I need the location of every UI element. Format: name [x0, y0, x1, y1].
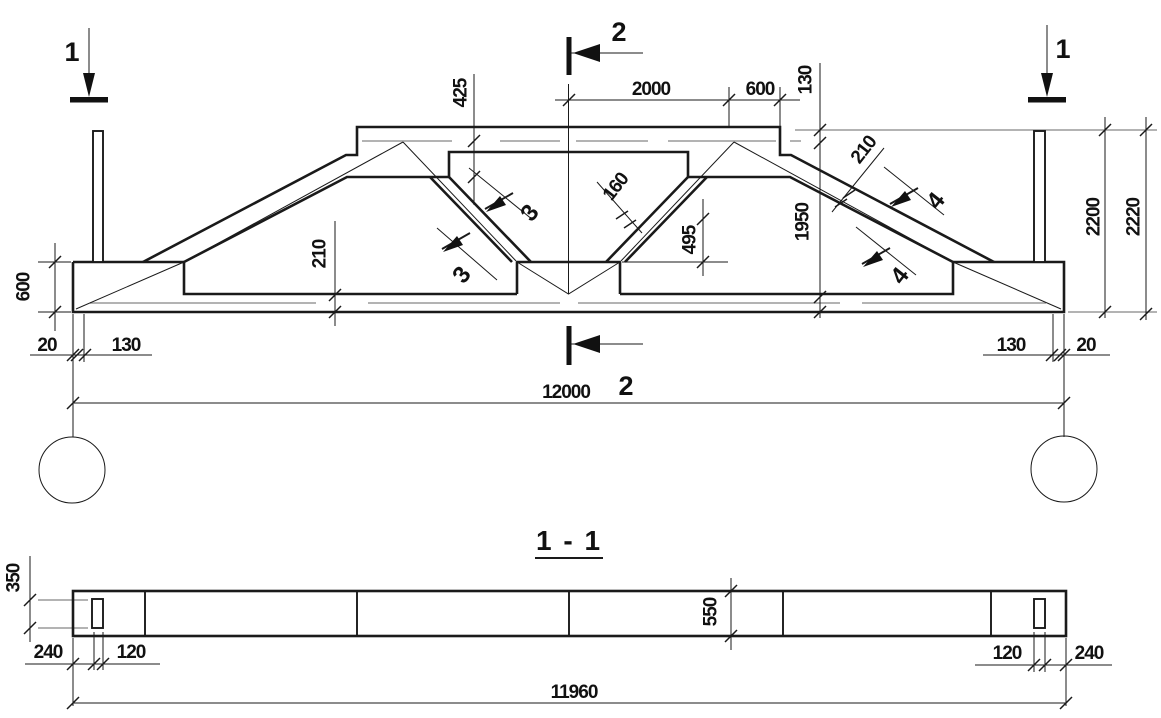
grid-bubble-right [1031, 436, 1097, 502]
drawing-page: 1 1 2 2 2000 600 12000 20 130 130 20 425… [0, 0, 1161, 718]
dim-425: 425 [451, 77, 472, 107]
labels: 1 1 2 2 2000 600 12000 20 130 130 20 425… [4, 17, 1145, 703]
section1-right-arrowhead [1041, 73, 1053, 97]
dim-120-right: 120 [993, 643, 1022, 664]
dim-20-right: 20 [1076, 335, 1096, 356]
section1-left-bar [70, 97, 108, 103]
section-view-title: 1 - 1 [536, 525, 602, 556]
section1-right-label: 1 [1055, 34, 1070, 64]
dim-550: 550 [701, 597, 722, 626]
dim-2200: 2200 [1084, 197, 1105, 236]
section2-bottom-bar [567, 326, 572, 365]
dim-1950: 1950 [793, 202, 814, 241]
flag-4a-label: 4 [921, 187, 951, 215]
section-bar-divisions [145, 591, 991, 636]
section-loop-right [1034, 599, 1045, 628]
flag-3a-label: 3 [515, 199, 545, 226]
flag-3b-label: 3 [447, 261, 477, 288]
dim-11960: 11960 [551, 682, 598, 703]
dim-600-top: 600 [746, 79, 775, 100]
dim-130-left: 130 [112, 335, 141, 356]
dim-600-left: 600 [14, 272, 35, 301]
dim-210-right: 210 [847, 132, 881, 168]
dim-12000: 12000 [542, 382, 590, 403]
truss-drawing-canvas: 1 1 2 2 2000 600 12000 20 130 130 20 425… [0, 0, 1161, 718]
flag-4b-label: 4 [885, 262, 915, 290]
dim-210-left: 210 [310, 239, 331, 268]
section1-right-bar [1028, 97, 1066, 103]
dim-160: 160 [599, 169, 633, 205]
section2-top-arrowhead [573, 44, 600, 62]
dim-130-right: 130 [997, 335, 1026, 356]
dim-2220: 2220 [1124, 197, 1145, 236]
dim-20-left: 20 [37, 335, 57, 356]
section1-left-arrowhead [83, 73, 95, 97]
flag-3a [485, 193, 513, 212]
section2-bottom-arrowhead [573, 335, 600, 353]
section1-left-label: 1 [64, 37, 79, 67]
section-1-1-view [73, 558, 1066, 636]
section2-bottom-label: 2 [618, 371, 633, 401]
embedded-post-right [1034, 131, 1045, 262]
embedded-post-left [93, 131, 103, 262]
flag-4b [862, 248, 890, 267]
dim-240-left: 240 [34, 642, 63, 663]
dim-350: 350 [4, 563, 25, 592]
dim-240-right: 240 [1075, 643, 1104, 664]
dim-120-left: 120 [117, 642, 146, 663]
section-loop-extension-gray [38, 600, 88, 628]
section2-top-bar [567, 37, 572, 75]
flag-4a [890, 188, 918, 207]
section-loop-left [92, 599, 103, 628]
section2-top-label: 2 [611, 17, 626, 47]
dim-2000: 2000 [632, 79, 671, 100]
dim-495: 495 [680, 224, 701, 254]
dim-130-slab: 130 [796, 65, 817, 94]
grid-bubble-left [39, 437, 105, 503]
